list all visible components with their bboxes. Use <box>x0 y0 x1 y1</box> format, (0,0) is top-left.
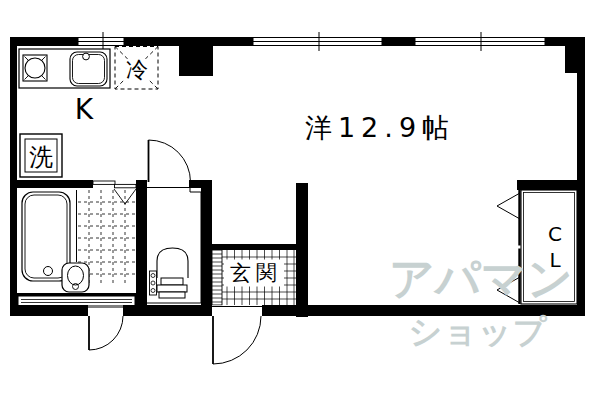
faucet-icon <box>83 53 90 60</box>
window-top-3 <box>415 32 545 51</box>
wall-left <box>10 37 17 313</box>
western-room-label: 洋12.9帖 <box>305 114 455 141</box>
washing-machine-label: 洗 <box>28 145 54 169</box>
shoe-cabinet-icon <box>212 250 222 305</box>
toilet-door-swing-icon <box>149 140 191 182</box>
wall-entrance-right <box>296 183 308 317</box>
entrance-label: 玄関 <box>224 260 284 287</box>
watermark-line2: ショップ <box>408 315 547 348</box>
wall-top-b <box>124 37 253 46</box>
floor-plan: K 洋12.9帖 玄関 冷 洗 C L アパマン ショップ <box>0 0 600 400</box>
watermark-line1: アパマン <box>389 256 573 301</box>
kitchen-label: K <box>75 96 93 124</box>
wall-toilet-right <box>201 180 212 307</box>
wall-closet-top <box>517 180 584 190</box>
pillar-top-center <box>179 46 213 76</box>
entry-door-swing-icon <box>212 306 262 365</box>
toilet-icon <box>150 248 189 298</box>
window-top-2 <box>253 32 382 51</box>
closet-label-line1: C <box>548 221 562 247</box>
pillar-top-right <box>565 43 585 73</box>
toilet-room <box>147 188 202 304</box>
side-door-swing-icon <box>88 306 123 351</box>
wall-divider-mid <box>136 180 147 188</box>
wall-bath-right <box>136 188 147 305</box>
bathroom <box>22 181 136 292</box>
louver-window-bath <box>18 296 135 306</box>
wall-bottom-a <box>10 305 88 316</box>
bifold-door-chevron-icon <box>497 193 520 219</box>
wall-top-a <box>12 37 78 46</box>
vanity-basin-icon <box>62 263 89 292</box>
wall-right <box>577 37 585 316</box>
wall-bottom-b <box>123 305 212 316</box>
wall-top-c <box>382 37 415 46</box>
refrigerator-label: 冷 <box>125 59 149 81</box>
wall-divider-left <box>10 180 93 188</box>
toilet-control-panel <box>150 271 157 295</box>
entrance-step-band <box>212 244 296 250</box>
bath-folding-door-icon <box>93 181 136 188</box>
